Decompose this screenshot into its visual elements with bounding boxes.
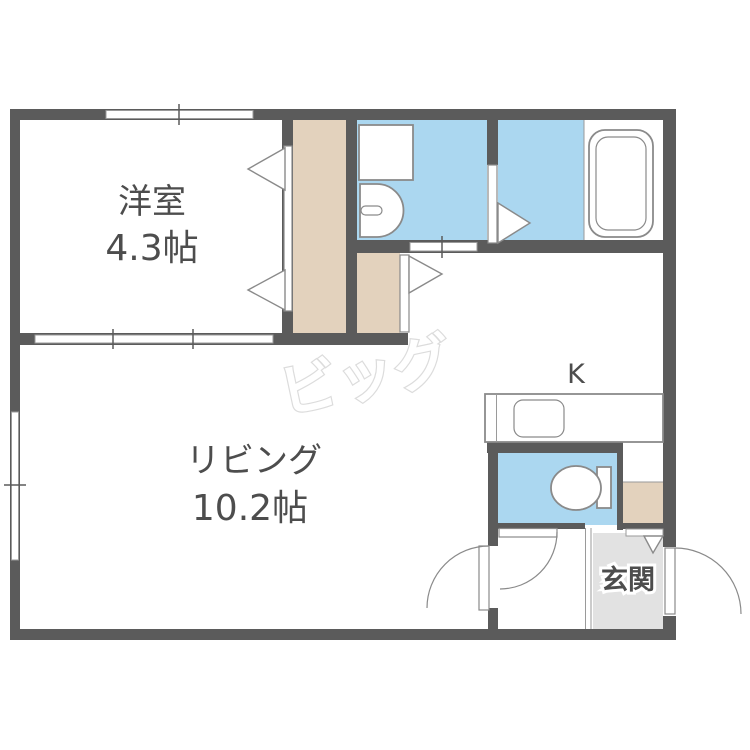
hall-wall-stub xyxy=(488,608,498,629)
toilet-room-left-wall xyxy=(488,442,498,546)
western-room-sliding-door xyxy=(35,335,273,343)
bathroom-door-panel xyxy=(488,165,497,243)
outer-wall-bottom xyxy=(10,629,676,640)
hall-closet-floor xyxy=(357,253,400,333)
shoe-storage-door-panel xyxy=(626,529,663,536)
kitchen-sink xyxy=(514,400,564,437)
toilet-room-top-wall xyxy=(487,442,623,453)
kitchen-counter xyxy=(485,394,663,442)
bathtub-inner xyxy=(596,137,646,230)
washroom-bathroom-wall xyxy=(487,109,498,165)
wet-area-bottom-wall xyxy=(346,240,663,253)
western-room-closet-floor xyxy=(293,120,346,335)
floor-plan-canvas: ビッグ xyxy=(0,0,750,750)
window-left xyxy=(12,412,19,560)
western-room-name: 洋室 xyxy=(118,182,186,222)
kitchen-label: K xyxy=(567,359,586,390)
closet-washroom-wall xyxy=(346,120,357,345)
shoe-storage-floor xyxy=(623,482,663,525)
living-hall-door-leaf xyxy=(479,546,489,610)
living-room-size: 10.2帖 xyxy=(192,488,308,529)
hall-closet-door-panel xyxy=(400,255,409,332)
western-room-size: 4.3帖 xyxy=(105,228,198,269)
entrance-label: 玄関 xyxy=(601,564,655,596)
washing-machine-pan xyxy=(359,125,413,180)
living-room-name: リビング xyxy=(186,441,322,481)
shoe-storage-bottom-wall xyxy=(623,523,663,529)
entry-door-leaf xyxy=(665,548,675,614)
toilet-storage-wall xyxy=(617,453,623,530)
wash-basin-faucet xyxy=(361,206,382,215)
toilet-door-leaf xyxy=(499,529,557,538)
washroom-sliding-door xyxy=(410,243,477,252)
floor-plan: ビッグ xyxy=(0,0,750,750)
toilet-bowl xyxy=(551,466,601,510)
